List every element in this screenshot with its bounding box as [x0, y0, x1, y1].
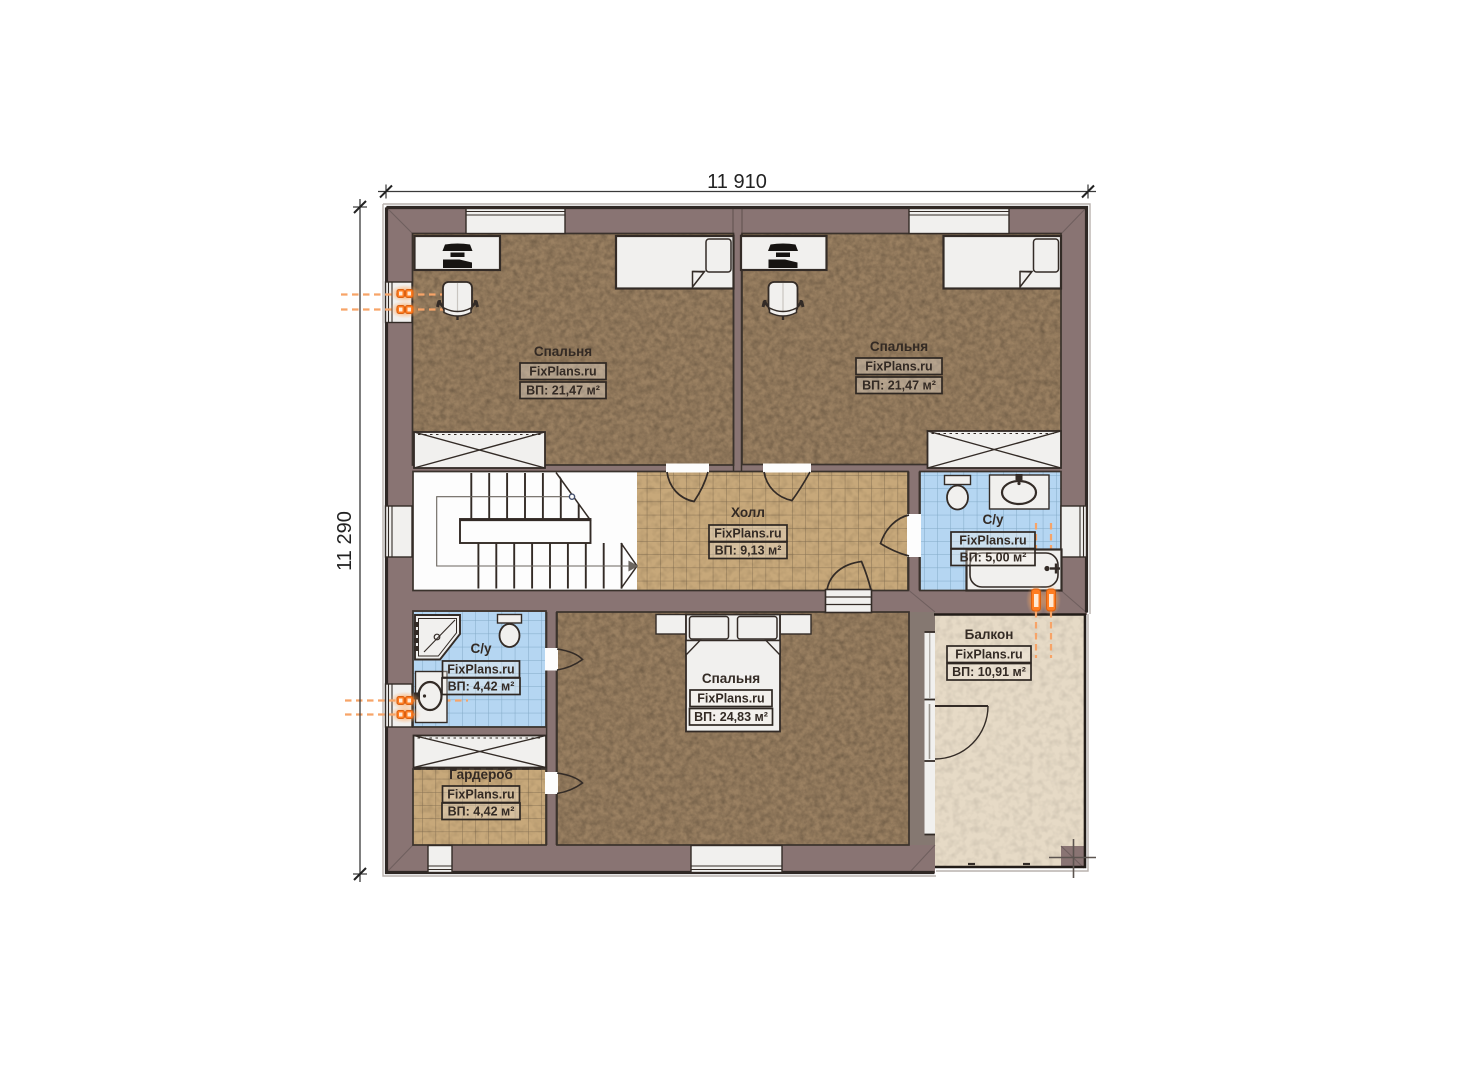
svg-text:ВП: 5,00 м²: ВП: 5,00 м² [960, 551, 1027, 565]
svg-text:С/у: С/у [982, 512, 1004, 527]
svg-text:ВП: 4,42 м²: ВП: 4,42 м² [448, 805, 515, 819]
svg-text:Балкон: Балкон [965, 627, 1014, 642]
svg-text:FixPlans.ru: FixPlans.ru [955, 648, 1022, 662]
svg-text:ВП: 24,83 м²: ВП: 24,83 м² [694, 710, 768, 724]
svg-text:Гардероб: Гардероб [449, 767, 513, 782]
svg-text:FixPlans.ru: FixPlans.ru [959, 534, 1026, 548]
svg-text:FixPlans.ru: FixPlans.ru [865, 360, 932, 374]
svg-text:ВП: 4,42 м²: ВП: 4,42 м² [448, 680, 515, 694]
svg-text:FixPlans.ru: FixPlans.ru [714, 527, 781, 541]
svg-text:11 910: 11 910 [707, 171, 767, 193]
svg-text:FixPlans.ru: FixPlans.ru [447, 788, 514, 802]
svg-text:ВП: 9,13 м²: ВП: 9,13 м² [715, 544, 782, 558]
svg-text:FixPlans.ru: FixPlans.ru [529, 365, 596, 379]
svg-text:Спальня: Спальня [702, 671, 760, 686]
svg-text:Спальня: Спальня [534, 344, 592, 359]
svg-text:ВП: 21,47 м²: ВП: 21,47 м² [526, 384, 600, 398]
svg-text:Холл: Холл [731, 505, 765, 520]
svg-text:ВП: 10,91 м²: ВП: 10,91 м² [952, 665, 1026, 679]
svg-text:ВП: 21,47 м²: ВП: 21,47 м² [862, 379, 936, 393]
svg-text:Спальня: Спальня [870, 339, 928, 354]
svg-text:С/у: С/у [470, 641, 492, 656]
svg-text:FixPlans.ru: FixPlans.ru [697, 692, 764, 706]
svg-text:FixPlans.ru: FixPlans.ru [447, 663, 514, 677]
svg-text:11 290: 11 290 [334, 511, 356, 571]
